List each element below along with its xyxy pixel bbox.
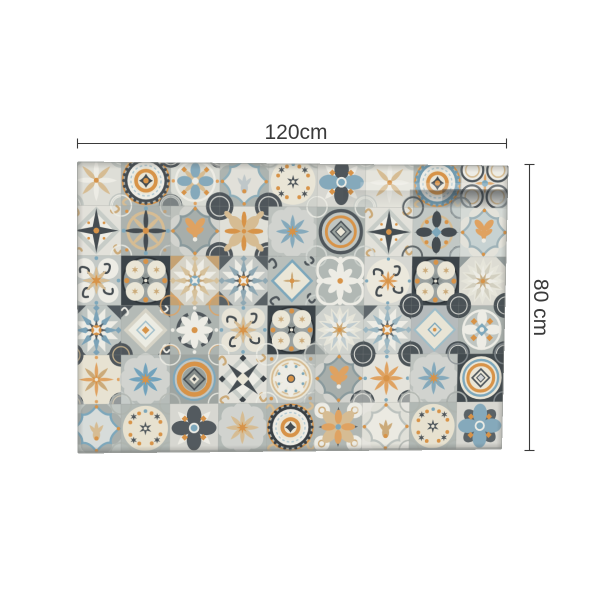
svg-text:120cm: 120cm	[264, 121, 327, 144]
svg-text:80 cm: 80 cm	[529, 279, 552, 336]
